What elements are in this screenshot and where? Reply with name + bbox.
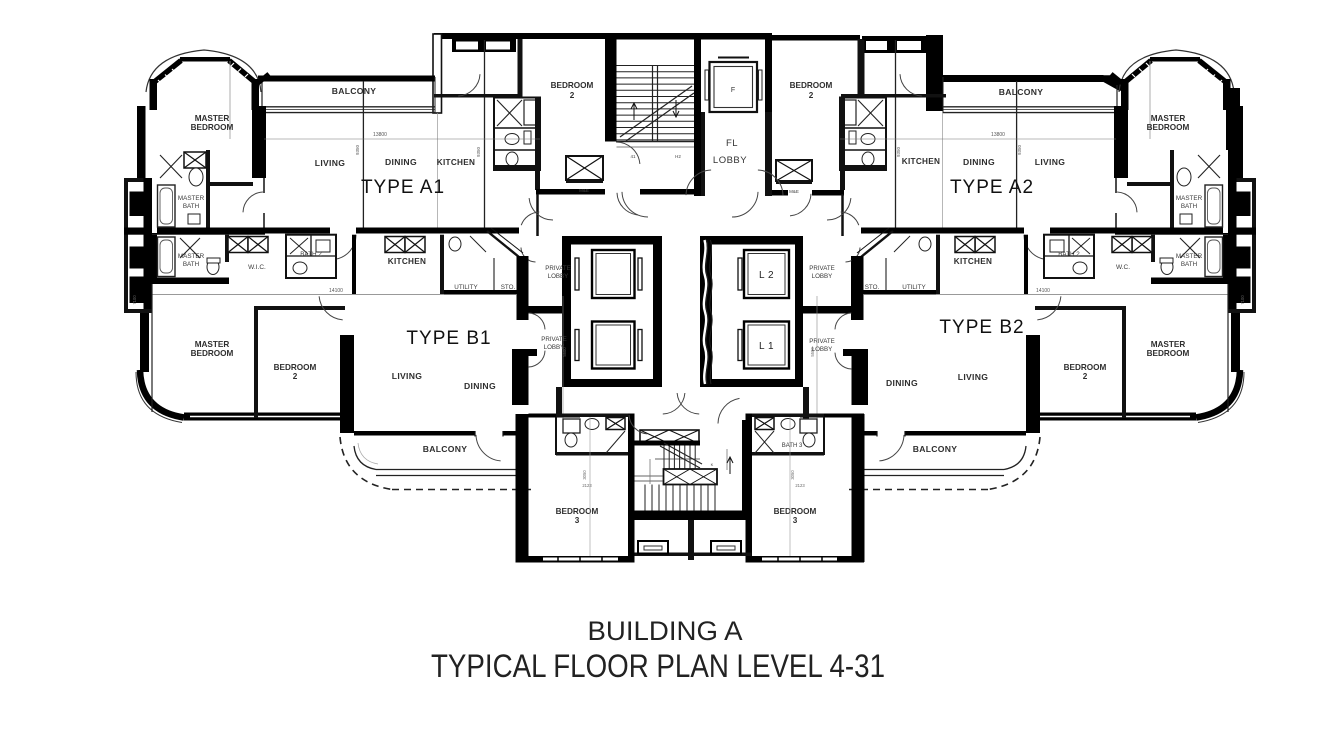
svg-text:L 2: L 2 <box>759 270 774 281</box>
svg-text:BEDROOM: BEDROOM <box>790 81 833 90</box>
svg-text:7100: 7100 <box>132 295 137 305</box>
svg-text:PRIVATE: PRIVATE <box>809 265 835 272</box>
svg-text:9350: 9350 <box>896 146 901 157</box>
svg-text:13800: 13800 <box>991 132 1005 138</box>
svg-text:BEDROOM: BEDROOM <box>1147 349 1190 358</box>
svg-text:UTILITY: UTILITY <box>454 284 478 291</box>
svg-text:LIVING: LIVING <box>958 372 988 382</box>
svg-text:2123: 2123 <box>582 483 592 488</box>
svg-text:FL: FL <box>726 138 738 149</box>
svg-text:BATH: BATH <box>1181 261 1198 268</box>
svg-text:41: 41 <box>630 154 636 159</box>
svg-text:BEDROOM: BEDROOM <box>774 507 817 516</box>
svg-text:3050: 3050 <box>790 470 795 480</box>
svg-text:9350: 9350 <box>355 144 360 155</box>
svg-text:LIVING: LIVING <box>392 371 422 381</box>
svg-text:2123: 2123 <box>795 483 805 488</box>
svg-text:K: K <box>711 462 714 467</box>
svg-text:MASTER: MASTER <box>1176 195 1203 202</box>
svg-text:H2: H2 <box>675 154 681 159</box>
svg-text:PRIVATE: PRIVATE <box>809 338 835 345</box>
svg-text:TYPE A2: TYPE A2 <box>950 177 1034 198</box>
svg-text:9350: 9350 <box>1017 144 1022 155</box>
svg-text:W.I.C.: W.I.C. <box>248 264 266 271</box>
svg-text:LOBBY: LOBBY <box>548 273 569 280</box>
svg-text:BEDROOM: BEDROOM <box>551 81 594 90</box>
svg-text:BEDROOM: BEDROOM <box>191 349 234 358</box>
svg-text:TYPE A1: TYPE A1 <box>361 177 445 198</box>
svg-text:BATH 2: BATH 2 <box>1058 251 1080 258</box>
svg-text:MASTER: MASTER <box>195 114 230 123</box>
svg-text:MASTER: MASTER <box>195 340 230 349</box>
svg-text:PRIVATE: PRIVATE <box>545 265 571 272</box>
svg-text:BATH: BATH <box>183 203 200 210</box>
svg-text:M&E: M&E <box>789 189 799 194</box>
svg-text:TYPE B1: TYPE B1 <box>406 328 491 349</box>
svg-text:3050: 3050 <box>582 470 587 480</box>
svg-text:14100: 14100 <box>1036 288 1050 294</box>
svg-text:STO.: STO. <box>865 284 880 291</box>
svg-text:BATH 3: BATH 3 <box>782 443 803 449</box>
svg-text:BATH: BATH <box>1181 203 1198 210</box>
svg-text:KITCHEN: KITCHEN <box>902 157 941 166</box>
svg-text:DINING: DINING <box>464 381 496 391</box>
svg-text:BATH: BATH <box>183 261 200 268</box>
svg-text:F: F <box>731 87 735 94</box>
svg-text:KITCHEN: KITCHEN <box>437 158 476 167</box>
svg-text:9350: 9350 <box>476 146 481 157</box>
svg-text:MASTER: MASTER <box>178 253 205 260</box>
svg-text:MASTER: MASTER <box>178 195 205 202</box>
svg-text:KITCHEN: KITCHEN <box>388 257 427 266</box>
svg-text:TYPICAL FLOOR PLAN LEVEL 4-31: TYPICAL FLOOR PLAN LEVEL 4-31 <box>431 648 885 684</box>
svg-text:LIVING: LIVING <box>1035 157 1065 167</box>
svg-text:BEDROOM: BEDROOM <box>191 123 234 132</box>
svg-text:W.C.: W.C. <box>1116 264 1130 271</box>
svg-text:BEDROOM: BEDROOM <box>1147 123 1190 132</box>
svg-text:BALCONY: BALCONY <box>423 444 468 454</box>
svg-text:LOBBY: LOBBY <box>713 155 747 166</box>
svg-text:KITCHEN: KITCHEN <box>954 257 993 266</box>
svg-text:DINING: DINING <box>886 378 918 388</box>
svg-text:MASTER: MASTER <box>1151 340 1186 349</box>
svg-text:MASTER: MASTER <box>1151 114 1186 123</box>
svg-text:BATH 2: BATH 2 <box>300 251 322 258</box>
svg-text:BALCONY: BALCONY <box>913 444 958 454</box>
svg-text:BUILDING A: BUILDING A <box>588 616 743 646</box>
svg-text:LOBBY: LOBBY <box>812 273 833 280</box>
svg-text:13800: 13800 <box>373 132 387 138</box>
svg-text:BEDROOM: BEDROOM <box>1064 363 1107 372</box>
svg-text:7100: 7100 <box>1240 295 1245 305</box>
svg-text:2: 2 <box>1083 372 1088 381</box>
svg-text:3: 3 <box>793 516 798 525</box>
svg-text:LIVING: LIVING <box>315 158 345 168</box>
svg-text:2: 2 <box>809 91 814 100</box>
svg-text:DINING: DINING <box>385 157 417 167</box>
svg-text:5500: 5500 <box>810 347 815 357</box>
svg-text:2: 2 <box>570 91 575 100</box>
svg-text:2: 2 <box>293 372 298 381</box>
svg-text:14100: 14100 <box>329 288 343 294</box>
svg-text:L 1: L 1 <box>759 341 774 352</box>
svg-text:STO.: STO. <box>501 284 516 291</box>
svg-text:BEDROOM: BEDROOM <box>274 363 317 372</box>
svg-text:BALCONY: BALCONY <box>332 86 377 96</box>
svg-text:UTILITY: UTILITY <box>902 284 926 291</box>
svg-text:MASTER: MASTER <box>1176 253 1203 260</box>
svg-text:M&E: M&E <box>579 188 589 193</box>
svg-text:TYPE B2: TYPE B2 <box>939 317 1024 338</box>
svg-text:5500: 5500 <box>562 347 567 357</box>
svg-text:BALCONY: BALCONY <box>999 87 1044 97</box>
svg-text:3: 3 <box>575 516 580 525</box>
svg-text:BEDROOM: BEDROOM <box>556 507 599 516</box>
svg-text:DINING: DINING <box>963 157 995 167</box>
